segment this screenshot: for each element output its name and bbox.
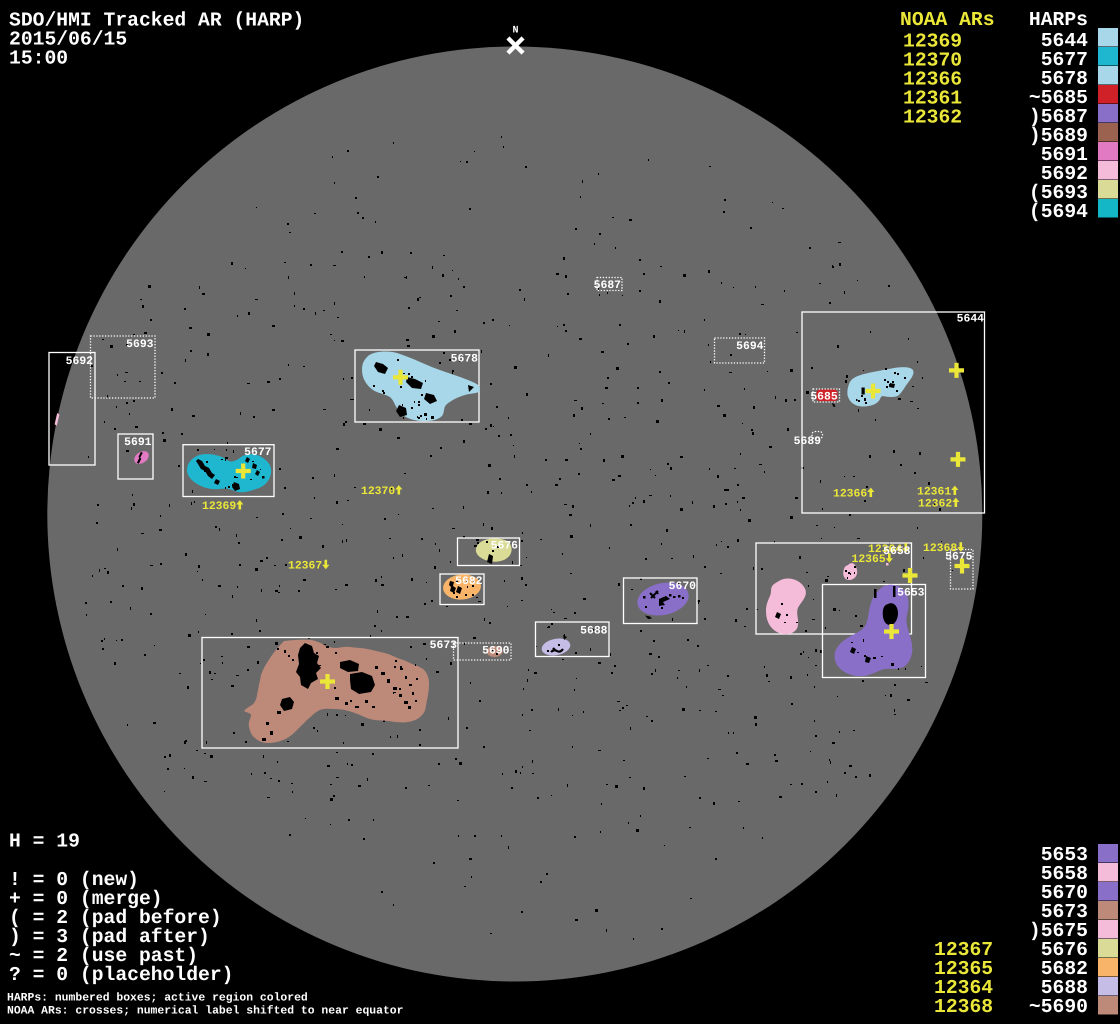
- svg-text:12370: 12370: [361, 486, 395, 498]
- svg-text:12369: 12369: [202, 501, 236, 513]
- svg-text:5677: 5677: [244, 447, 272, 459]
- svg-text:5691: 5691: [124, 437, 152, 449]
- svg-text:(5694: (5694: [1029, 201, 1088, 223]
- svg-text:12367: 12367: [288, 560, 322, 572]
- svg-text:5653: 5653: [897, 587, 925, 599]
- svg-text:5687: 5687: [594, 280, 622, 292]
- svg-text:NOAA ARs: NOAA ARs: [900, 9, 995, 31]
- svg-text:HARPs: numbered boxes; active: HARPs: numbered boxes; active region col…: [7, 991, 308, 1004]
- svg-text:5675: 5675: [945, 551, 973, 563]
- svg-text:N: N: [512, 26, 518, 37]
- svg-text:12368: 12368: [934, 996, 993, 1018]
- svg-text:5682: 5682: [455, 576, 483, 588]
- svg-text:5693: 5693: [126, 339, 154, 351]
- svg-text:5676: 5676: [491, 540, 519, 552]
- svg-text:12362: 12362: [918, 498, 952, 510]
- svg-text:5673: 5673: [430, 640, 458, 652]
- svg-text:5694: 5694: [736, 341, 764, 353]
- svg-text:5690: 5690: [482, 645, 510, 657]
- svg-text:? = 0 (placeholder): ? = 0 (placeholder): [9, 964, 233, 986]
- svg-text:5688: 5688: [580, 625, 608, 637]
- svg-text:5692: 5692: [66, 356, 94, 368]
- svg-text:5689: 5689: [794, 436, 822, 448]
- svg-text:NOAA ARs: crosses; numerical l: NOAA ARs: crosses; numerical label shift…: [7, 1004, 404, 1017]
- svg-text:5685: 5685: [810, 391, 838, 403]
- svg-text:5644: 5644: [957, 313, 985, 325]
- svg-text:H = 19: H = 19: [9, 830, 80, 852]
- svg-text:12361: 12361: [917, 486, 951, 498]
- svg-text:5678: 5678: [451, 353, 479, 365]
- svg-text:12366: 12366: [833, 488, 867, 500]
- svg-text:HARPs: HARPs: [1029, 9, 1088, 31]
- svg-text:5658: 5658: [883, 546, 911, 558]
- svg-text:15:00: 15:00: [9, 48, 68, 70]
- svg-text:12362: 12362: [903, 107, 962, 129]
- svg-text:~5690: ~5690: [1029, 996, 1088, 1018]
- svg-text:5670: 5670: [669, 581, 697, 593]
- svg-text:12365: 12365: [852, 554, 886, 566]
